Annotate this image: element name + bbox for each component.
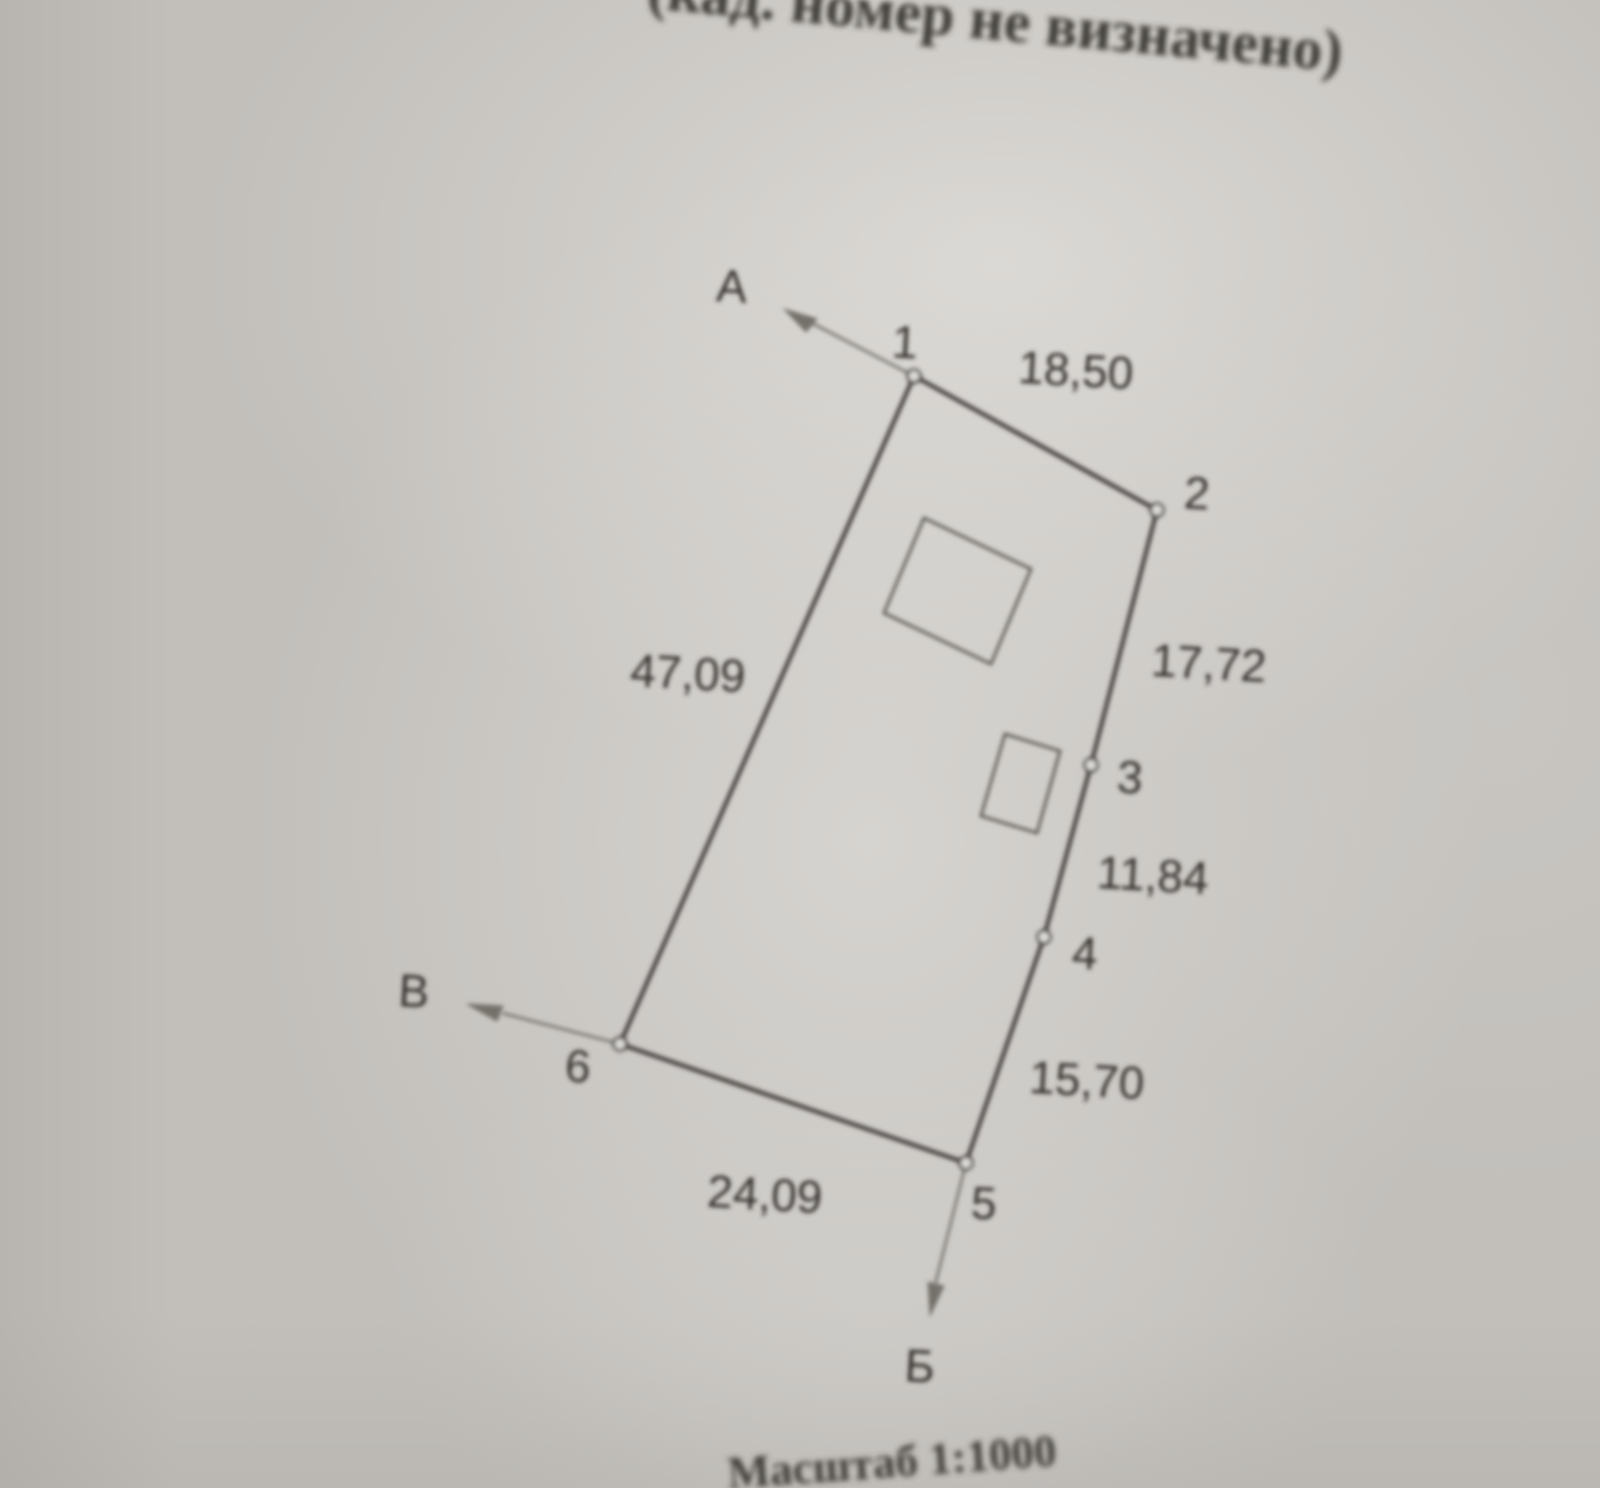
svg-text:3: 3 xyxy=(1116,750,1144,803)
svg-text:24,09: 24,09 xyxy=(706,1165,824,1223)
svg-text:17,72: 17,72 xyxy=(1150,634,1268,692)
svg-text:2: 2 xyxy=(1183,466,1211,519)
svg-text:1: 1 xyxy=(891,315,919,368)
svg-text:11,84: 11,84 xyxy=(1096,846,1210,904)
svg-text:18,50: 18,50 xyxy=(1017,341,1135,399)
svg-text:4: 4 xyxy=(1071,926,1099,979)
svg-text:А: А xyxy=(715,259,749,313)
svg-text:5: 5 xyxy=(970,1176,998,1229)
svg-text:В: В xyxy=(397,964,431,1018)
svg-text:6: 6 xyxy=(564,1039,592,1092)
svg-text:(кад. номер не визначено): (кад. номер не визначено) xyxy=(645,0,1346,84)
svg-text:Б: Б xyxy=(903,1339,936,1393)
svg-text:Масштаб 1:1000: Масштаб 1:1000 xyxy=(726,1426,1058,1488)
svg-text:47,09: 47,09 xyxy=(629,644,747,702)
svg-text:15,70: 15,70 xyxy=(1028,1051,1146,1109)
